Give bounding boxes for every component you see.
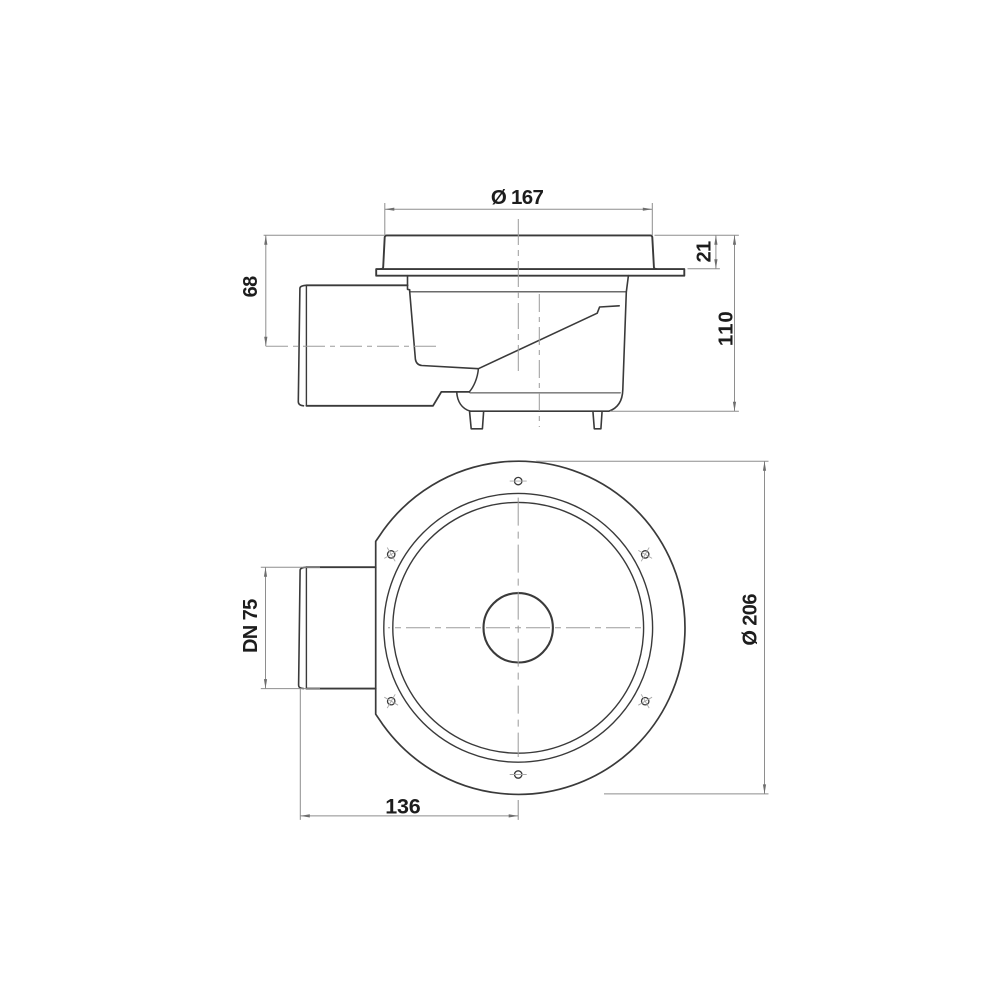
svg-text:Ø 167: Ø 167 [491, 186, 544, 209]
svg-text:136: 136 [385, 794, 421, 818]
svg-text:Ø 206: Ø 206 [739, 594, 761, 646]
svg-text:DN 75: DN 75 [240, 599, 262, 653]
svg-text:110: 110 [714, 310, 737, 346]
svg-text:21: 21 [693, 241, 715, 263]
svg-text:68: 68 [240, 276, 262, 298]
